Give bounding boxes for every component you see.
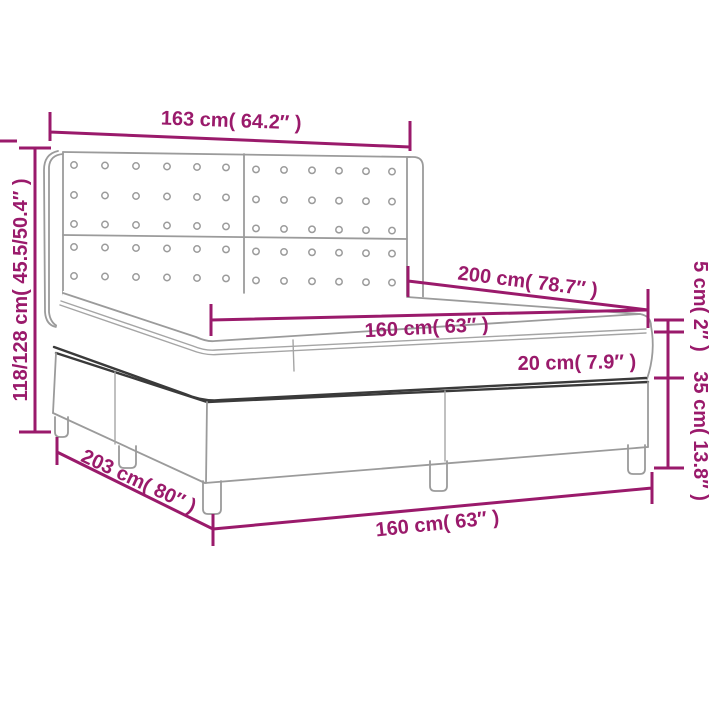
tufting-button (309, 197, 315, 203)
tufting-button (389, 250, 395, 256)
bed-dimension-diagram: 163 cm( 64.2″ ) 118/128 cm( 45.5/50.4″ )… (0, 0, 720, 720)
tufting-button (253, 196, 259, 202)
dim-label-mattress-height: 20 cm( 7.9″ ) (517, 351, 636, 375)
tufting-button (133, 193, 139, 199)
tufting-button (389, 279, 395, 285)
tufting-button (363, 198, 369, 204)
tufting-button (336, 198, 342, 204)
tufting-button (223, 275, 229, 281)
tufting-button (223, 194, 229, 200)
tufting-button (102, 192, 108, 198)
tufting-button (194, 194, 200, 200)
tufting-button (281, 197, 287, 203)
bed-leg (203, 481, 221, 514)
mattress-foot-seam (293, 340, 294, 371)
tufting-button (194, 223, 200, 229)
dim-label-topper-height: 5 cm( 2″ ) (689, 261, 711, 352)
tufting-button (223, 164, 229, 170)
tufting-button (253, 225, 259, 231)
tufting-button (336, 279, 342, 285)
tufting-button (164, 222, 170, 228)
tufting-button (102, 162, 108, 168)
tufting-button (281, 167, 287, 173)
tufting-button (71, 192, 77, 198)
diagram-canvas: 163 cm( 64.2″ ) 118/128 cm( 45.5/50.4″ )… (0, 0, 720, 720)
tufting-button (223, 223, 229, 229)
tufting-button (194, 275, 200, 281)
tufting-button (102, 273, 108, 279)
tufting-button (71, 221, 77, 227)
tufting-button (389, 198, 395, 204)
tufting-button (223, 246, 229, 252)
bed-illustration (44, 151, 653, 514)
tufting-button (363, 279, 369, 285)
tufting-button (164, 193, 170, 199)
tufting-button (253, 248, 259, 254)
tufting-button (253, 277, 259, 283)
dim-base-width: 160 cm( 63″ ) (213, 472, 652, 541)
base-corner-edge (206, 402, 207, 483)
tufting-button (363, 168, 369, 174)
tufting-button (253, 166, 259, 172)
dim-headboard-width: 163 cm( 64.2″ ) (50, 108, 410, 151)
headboard-left-wing-fill (44, 151, 63, 327)
tufting-button (164, 245, 170, 251)
tufting-button (194, 246, 200, 252)
dim-label-frame-height: 118/128 cm( 45.5/50.4″ ) (10, 178, 32, 401)
tufting-button (133, 274, 139, 280)
tufting-button (389, 168, 395, 174)
dim-topper-and-base-height: 5 cm( 2″ ) 35 cm( 13.8″ ) (654, 261, 711, 501)
dim-label-topper-base-height: 5 cm( 2″ ) 35 cm( 13.8″ ) (689, 261, 711, 501)
tufting-button (281, 278, 287, 284)
tufting-button (194, 164, 200, 170)
tufting-button (309, 167, 315, 173)
tufting-button (309, 249, 315, 255)
dim-mattress-height: 20 cm( 7.9″ ) (517, 351, 636, 375)
tufting-button (133, 222, 139, 228)
tufting-button (336, 250, 342, 256)
dim-line (654, 320, 684, 468)
tufting-button (164, 163, 170, 169)
tufting-button (389, 227, 395, 233)
tufting-button (309, 278, 315, 284)
tufting-button (363, 227, 369, 233)
tufting-button (309, 226, 315, 232)
tufting-button (71, 244, 77, 250)
dim-label-base-height: 35 cm( 13.8″ ) (689, 371, 711, 501)
tufting-button (71, 273, 77, 279)
tufting-button (281, 249, 287, 255)
tufting-button (102, 221, 108, 227)
tufting-button (164, 274, 170, 280)
tufting-button (336, 227, 342, 233)
tufting-button (281, 226, 287, 232)
tufting-button (133, 245, 139, 251)
tufting-button (363, 250, 369, 256)
tufting-button (71, 162, 77, 168)
tufting-button (336, 168, 342, 174)
bed-leg (430, 461, 447, 491)
dim-label-headboard-width: 163 cm( 64.2″ ) (160, 108, 301, 135)
bed-leg (628, 445, 645, 474)
tufting-button (133, 163, 139, 169)
tufting-button (102, 244, 108, 250)
